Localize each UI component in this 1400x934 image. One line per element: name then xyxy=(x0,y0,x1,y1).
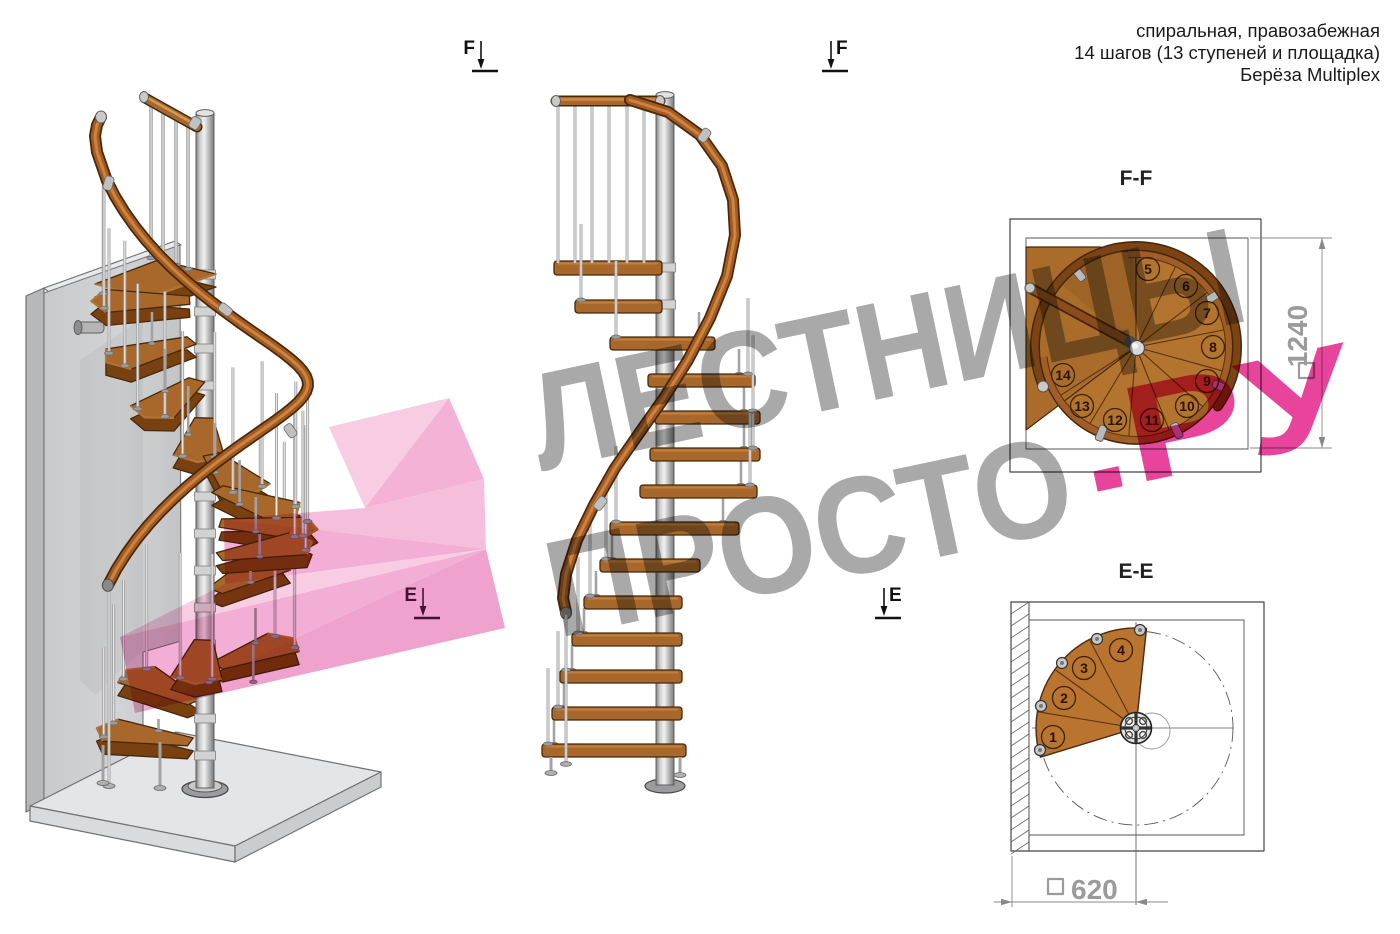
svg-text:F-F: F-F xyxy=(1120,167,1153,190)
svg-text:14 шагов (13 ступеней и площад: 14 шагов (13 ступеней и площадка) xyxy=(1074,42,1380,63)
svg-text:1: 1 xyxy=(1049,729,1057,745)
svg-text:3: 3 xyxy=(1080,660,1088,676)
svg-text:спиральная, правозабежная: спиральная, правозабежная xyxy=(1136,20,1380,41)
svg-text:E-E: E-E xyxy=(1118,560,1153,583)
svg-text:F: F xyxy=(463,38,475,59)
svg-text:4: 4 xyxy=(1117,642,1125,658)
svg-text:F: F xyxy=(836,38,848,59)
svg-text:E: E xyxy=(889,585,902,606)
svg-text:2: 2 xyxy=(1060,690,1068,706)
svg-text:620: 620 xyxy=(1071,874,1118,905)
svg-text:Берёза Multiplex: Берёза Multiplex xyxy=(1240,64,1381,85)
svg-text:E: E xyxy=(404,585,417,606)
